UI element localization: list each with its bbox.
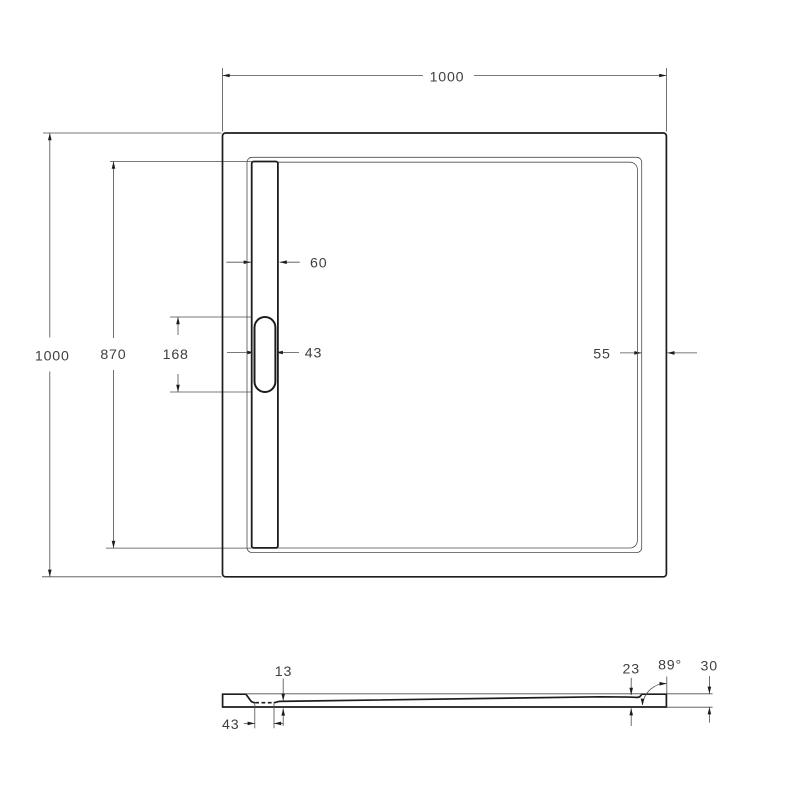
svg-text:89°: 89° [658,658,682,674]
svg-text:13: 13 [275,664,292,680]
svg-text:30: 30 [701,658,718,674]
svg-text:1000: 1000 [35,348,70,364]
svg-text:870: 870 [100,347,126,363]
svg-text:60: 60 [310,255,327,271]
svg-text:23: 23 [623,661,640,677]
svg-text:1000: 1000 [430,69,465,85]
svg-text:43: 43 [305,346,322,362]
svg-text:55: 55 [593,346,610,362]
svg-text:43: 43 [222,717,239,733]
svg-text:168: 168 [163,347,189,363]
